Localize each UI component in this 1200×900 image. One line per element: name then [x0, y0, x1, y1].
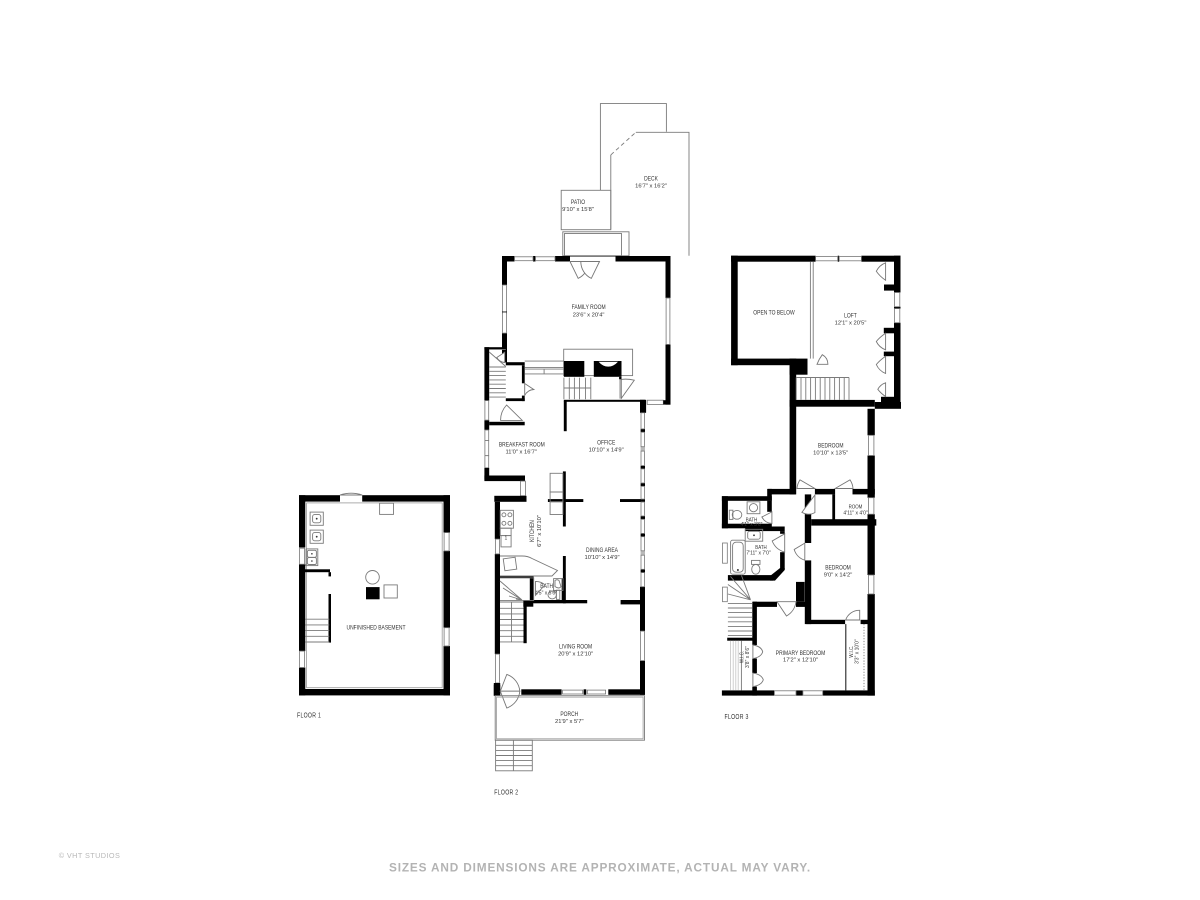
svg-text:4'11" x 4'0": 4'11" x 4'0": [843, 511, 867, 517]
svg-text:FLOOR 2: FLOOR 2: [494, 789, 518, 797]
svg-text:UNFINISHED BASEMENT: UNFINISHED BASEMENT: [347, 625, 406, 632]
svg-text:BEDROOM: BEDROOM: [825, 565, 851, 572]
svg-text:PORCH: PORCH: [560, 712, 578, 719]
svg-text:PRIMARY BEDROOM: PRIMARY BEDROOM: [776, 650, 826, 657]
svg-text:1: 1: [505, 536, 508, 542]
svg-text:10'10" x 14'9": 10'10" x 14'9": [589, 448, 624, 454]
svg-text:11'0" x 16'7": 11'0" x 16'7": [506, 450, 537, 456]
svg-text:SIZES AND DIMENSIONS ARE APPRO: SIZES AND DIMENSIONS ARE APPROXIMATE, AC…: [389, 861, 811, 875]
svg-text:LOFT: LOFT: [844, 313, 857, 320]
svg-text:9'10" x 15'8": 9'10" x 15'8": [562, 207, 594, 213]
svg-text:7'11" x 7'0": 7'11" x 7'0": [746, 551, 770, 557]
svg-text:23'6" x 20'4": 23'6" x 20'4": [573, 313, 605, 319]
svg-text:10'10" x 14'9": 10'10" x 14'9": [584, 555, 619, 561]
svg-text:9'0" x 14'2": 9'0" x 14'2": [824, 573, 853, 579]
svg-text:21'9" x 5'7": 21'9" x 5'7": [555, 719, 584, 725]
svg-text:10'10" x 13'5": 10'10" x 13'5": [813, 451, 848, 457]
svg-text:FLOOR 3: FLOOR 3: [725, 713, 749, 721]
svg-text:FLOOR 1: FLOOR 1: [297, 712, 321, 720]
svg-text:BREAKFAST ROOM: BREAKFAST ROOM: [499, 442, 545, 449]
svg-text:DECK: DECK: [644, 176, 658, 183]
svg-text:© VHT STUDIOS: © VHT STUDIOS: [59, 851, 121, 860]
svg-text:BEDROOM: BEDROOM: [818, 443, 844, 450]
svg-text:16'7" x 16'2": 16'7" x 16'2": [635, 183, 667, 189]
svg-text:12'1" x 20'5": 12'1" x 20'5": [835, 321, 867, 327]
svg-text:FAMILY ROOM: FAMILY ROOM: [572, 305, 606, 312]
svg-text:PATIO: PATIO: [571, 200, 586, 207]
svg-text:DINING AREA: DINING AREA: [586, 548, 618, 555]
svg-text:KITCHEN: KITCHEN: [530, 520, 537, 542]
svg-text:BATH: BATH: [540, 584, 553, 591]
svg-text:3'3" x 10'0": 3'3" x 10'0": [855, 639, 861, 664]
svg-text:OFFICE: OFFICE: [597, 440, 615, 447]
svg-text:6'7" x 10'10": 6'7" x 10'10": [537, 515, 543, 547]
svg-text:17'2" x 12'10": 17'2" x 12'10": [783, 658, 818, 664]
svg-text:20'9" x 12'10": 20'9" x 12'10": [558, 652, 593, 658]
svg-text:3'8" x 8'6": 3'8" x 8'6": [745, 646, 751, 668]
svg-text:OPEN TO BELOW: OPEN TO BELOW: [753, 310, 795, 317]
svg-text:LIVING ROOM: LIVING ROOM: [559, 644, 592, 651]
